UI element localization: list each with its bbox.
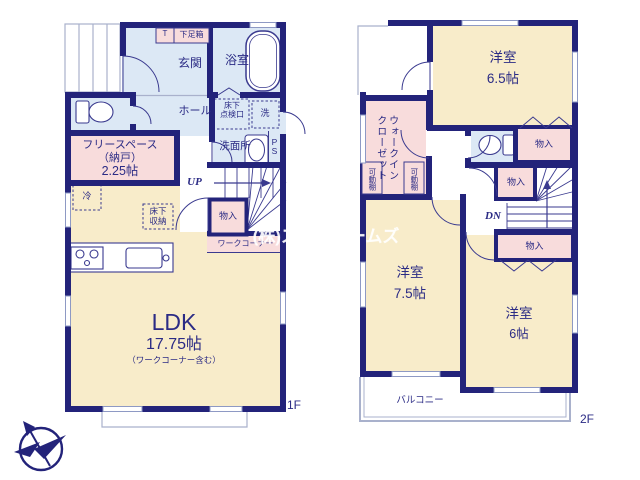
- washroom-label: 洗面所: [211, 140, 259, 152]
- free-space-label: フリースペース （納戸）: [70, 139, 170, 165]
- tall-cabinet-label: T: [156, 29, 174, 38]
- closet-mid-label: 物入: [497, 177, 535, 188]
- bathroom-label: 浴室: [214, 53, 260, 67]
- floor2-label: 2F: [580, 412, 606, 426]
- kitchen-counter: [67, 243, 173, 272]
- pipe-space-label: PS: [269, 138, 280, 155]
- closet-1f-label: 物入: [210, 211, 246, 222]
- terrace-step: [102, 412, 247, 427]
- walk-in-closet-label: ウォークイン クローゼット: [374, 104, 398, 192]
- entrance-porch: [65, 24, 120, 92]
- compass-icon: [14, 421, 66, 470]
- f2-plan: [358, 20, 578, 421]
- bedroom2-size-label: 7.5帖: [378, 286, 442, 302]
- floor1-label: 1F: [287, 398, 313, 412]
- stairs-down-label: DN: [479, 210, 507, 223]
- shoe-box-label: 下足箱: [174, 30, 209, 39]
- entrance-label: 玄関: [166, 56, 214, 70]
- movable-shelf-left-label: 可動棚: [367, 165, 376, 193]
- bedroom2-label: 洋室: [378, 265, 442, 281]
- f1-plan: [65, 22, 305, 427]
- closet-bottom-label: 物入: [496, 241, 573, 252]
- ldk-label: LDK: [119, 309, 229, 336]
- floorplan-page: T 下足箱 玄関 浴室 ホール 床下 点検口 洗 洗面所 PS フリースペース …: [0, 0, 640, 480]
- bedroom1-size-label: 6.5帖: [477, 71, 529, 87]
- stairs-up-label: UP: [181, 176, 208, 189]
- toilet-icon-1f: [76, 101, 113, 123]
- watermark-text: (株)スターホームズ: [246, 227, 406, 247]
- laundry-label: 洗: [255, 108, 275, 119]
- free-space-size-label: 2.25帖: [70, 164, 170, 179]
- underfloor-storage-label: 床下 収納: [144, 206, 172, 226]
- hall-label: ホール: [172, 105, 218, 118]
- closet-top-label: 物入: [516, 139, 572, 150]
- refrigerator-label: 冷: [78, 191, 96, 202]
- underfloor-access-label: 床下 点検口: [215, 101, 249, 120]
- bedroom1-label: 洋室: [477, 50, 529, 66]
- movable-shelf-right-label: 可動棚: [409, 165, 418, 193]
- bedroom3-size-label: 6帖: [487, 327, 551, 342]
- ldk-size-label: 17.75帖: [119, 336, 229, 355]
- toilet-icon-2f: [479, 135, 514, 155]
- balcony-label: バルコニー: [388, 395, 452, 406]
- f2-hall-boundary: [358, 26, 388, 95]
- ldk-note-label: （ワークコーナー含む）: [107, 355, 241, 365]
- bedroom3-label: 洋室: [487, 306, 551, 322]
